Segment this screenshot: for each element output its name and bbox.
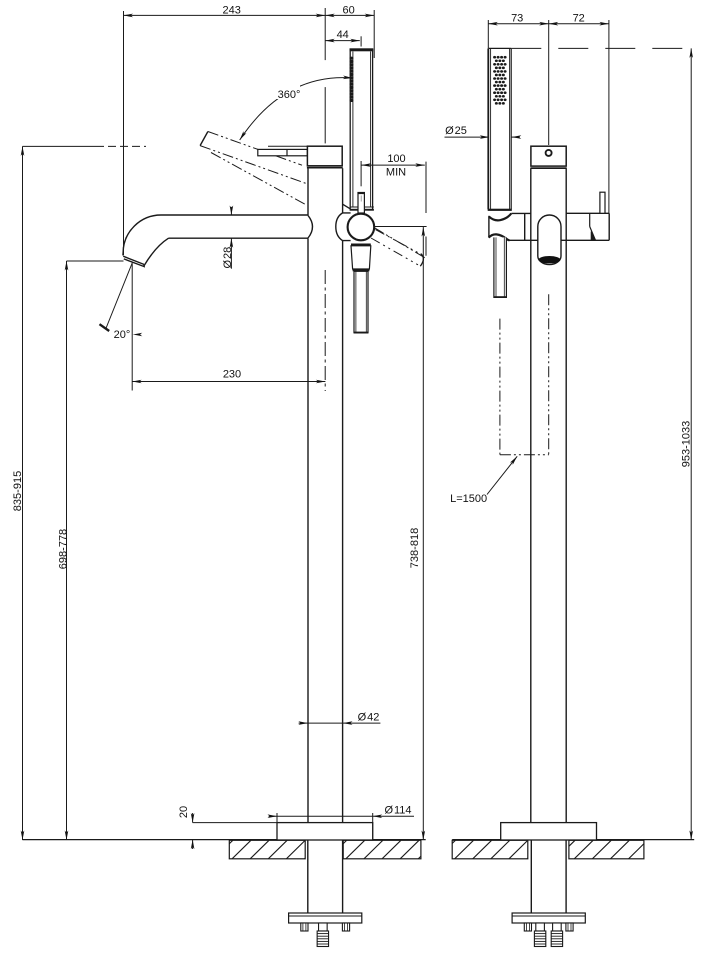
svg-text:738-818: 738-818 <box>409 528 421 568</box>
svg-text:60: 60 <box>342 4 354 16</box>
svg-text:Ø 28: Ø 28 <box>222 247 234 269</box>
svg-text:360°: 360° <box>278 89 301 101</box>
svg-text:L=1500: L=1500 <box>450 493 487 505</box>
svg-text:MIN: MIN <box>386 167 406 179</box>
svg-text:73: 73 <box>511 13 523 25</box>
svg-text:230: 230 <box>223 368 241 380</box>
svg-text:Ø 42: Ø 42 <box>358 711 380 723</box>
svg-text:44: 44 <box>337 29 349 41</box>
svg-text:20: 20 <box>178 806 190 818</box>
svg-text:72: 72 <box>573 13 585 25</box>
svg-text:835-915: 835-915 <box>12 471 24 511</box>
svg-text:100: 100 <box>387 153 405 165</box>
svg-text:953-1033: 953-1033 <box>680 421 692 468</box>
svg-text:698-778: 698-778 <box>57 529 69 569</box>
svg-text:Ø 114: Ø 114 <box>384 805 411 817</box>
svg-text:Ø 25: Ø 25 <box>445 125 467 137</box>
svg-text:20°: 20° <box>114 329 131 341</box>
svg-text:243: 243 <box>223 4 241 16</box>
